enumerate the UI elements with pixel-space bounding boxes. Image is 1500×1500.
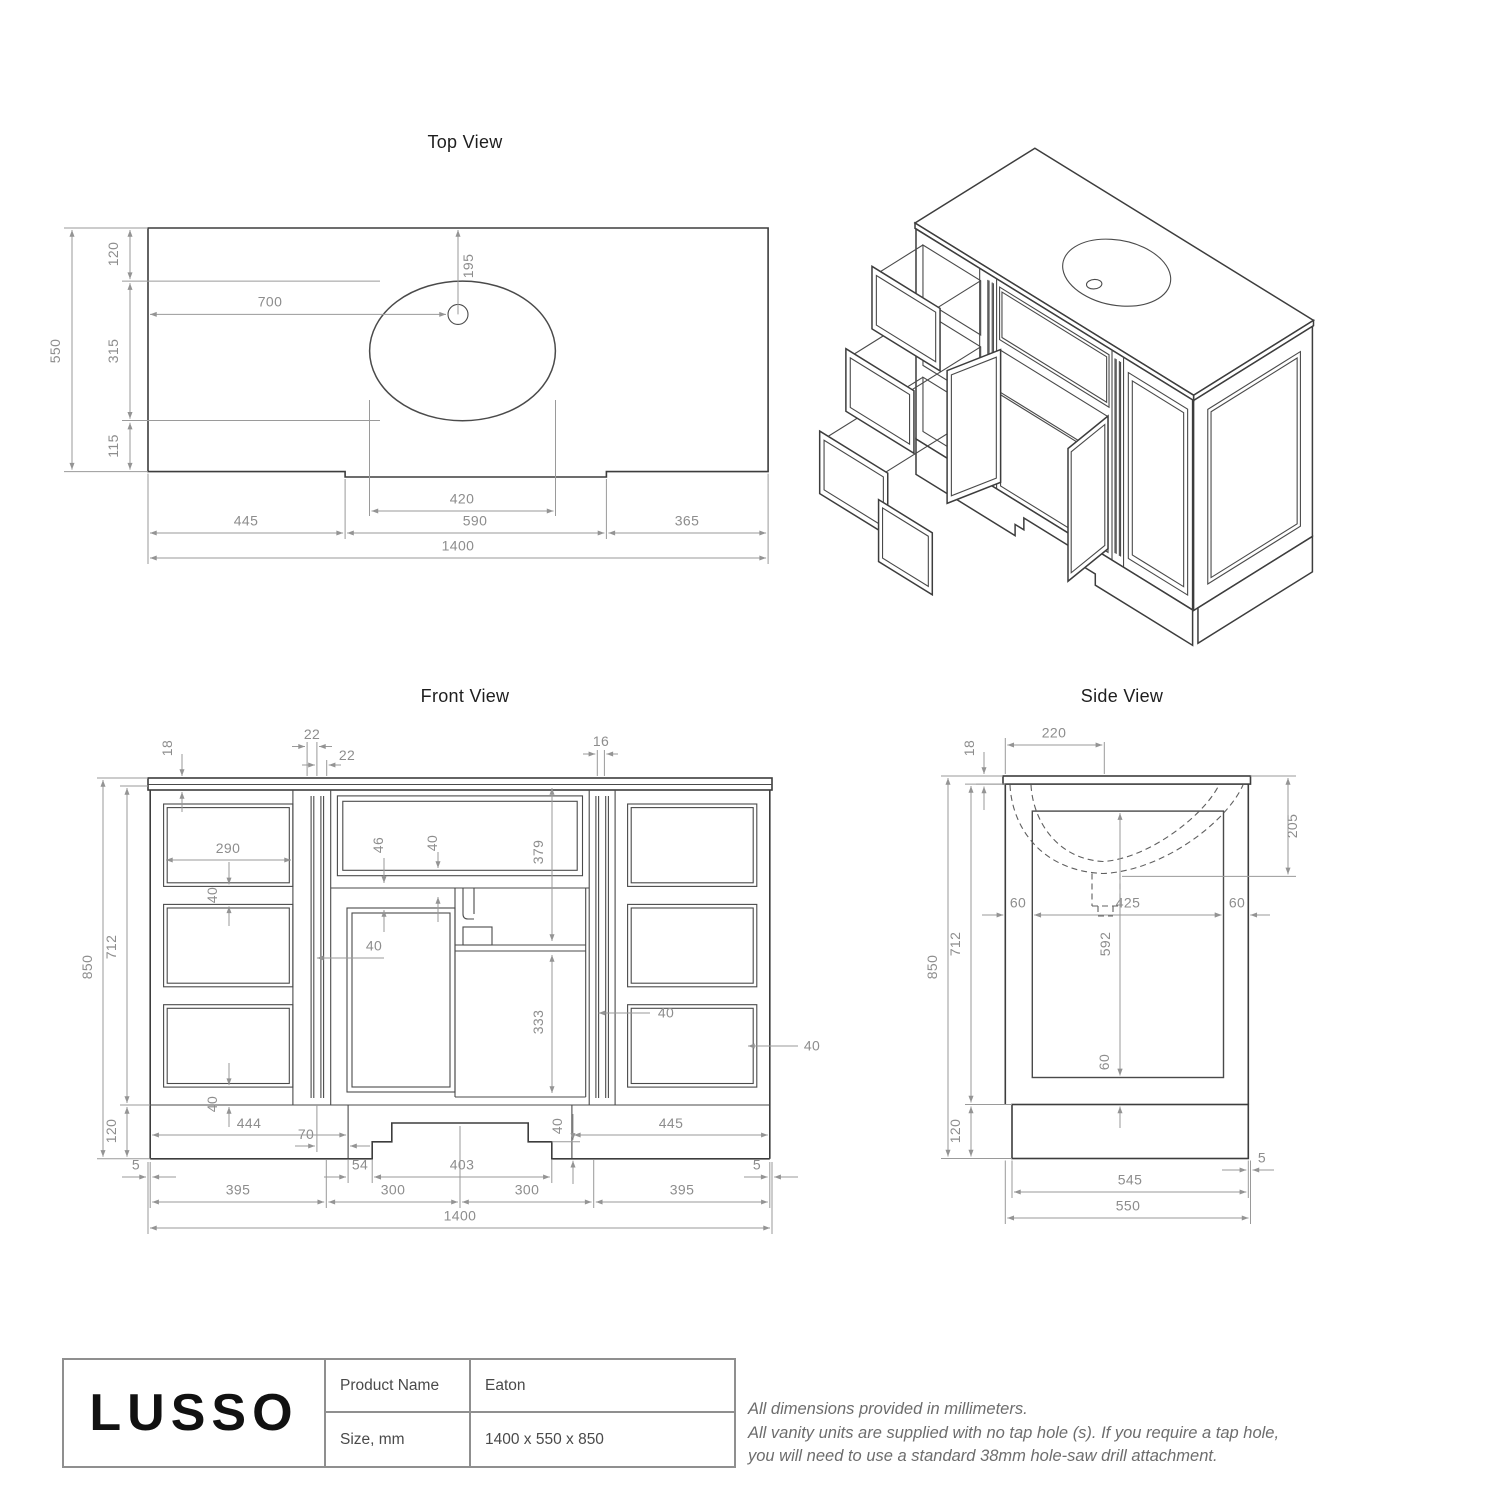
dim-label: 550 (1116, 1198, 1141, 1214)
brand-logo: LUSSO (64, 1360, 326, 1466)
dim-label: 54 (352, 1157, 368, 1173)
waste-trap (463, 888, 492, 945)
size-label: Size, mm (326, 1413, 471, 1466)
iso-open-drawer-3 (820, 431, 888, 536)
basin-oval (370, 281, 556, 421)
pilaster-grooves (311, 796, 608, 1098)
dim-label: 403 (450, 1157, 475, 1173)
dim-label: 850 (79, 955, 95, 980)
dim-label: 40 (804, 1038, 820, 1054)
product-name-value: Eaton (471, 1360, 734, 1413)
iso-open-door-left (947, 350, 1001, 504)
dim-label: 1400 (442, 538, 475, 554)
dim-label: 300 (381, 1182, 406, 1198)
dim-label: 16 (593, 733, 609, 749)
side-plinth (1012, 1105, 1248, 1159)
dim-label: 22 (339, 747, 355, 763)
dim-label: 365 (675, 513, 700, 529)
dim-label: 40 (366, 938, 382, 954)
dim-label: 46 (370, 837, 386, 853)
dim-label: 425 (1116, 895, 1141, 911)
title-block-table: Product Name Eaton Size, mm 1400 x 550 x… (326, 1360, 734, 1466)
specification-sheet: Top View Front View Side View (0, 0, 1500, 1500)
isometric-view (820, 148, 1314, 646)
dim-label: 550 (47, 339, 63, 364)
front-view-object-lines (148, 778, 772, 1159)
dim-label: 40 (204, 1096, 220, 1112)
dim-label: 444 (237, 1115, 262, 1131)
dim-label: 5 (1258, 1150, 1266, 1166)
dim-label: 120 (103, 1119, 119, 1144)
dim-label: 60 (1229, 895, 1245, 911)
dim-label: 195 (460, 254, 476, 279)
side-view-object-lines (1003, 776, 1251, 1159)
dim-label: 18 (961, 740, 977, 756)
dim-label: 420 (450, 491, 475, 507)
dim-label: 120 (947, 1119, 963, 1144)
side-panel (1032, 811, 1223, 1077)
right-door-panels (628, 804, 757, 1087)
note-line: All vanity units are supplied with no ta… (748, 1422, 1328, 1446)
side-view-dimensions: 18 220 205 850 712 (924, 725, 1300, 1225)
dim-label: 315 (105, 339, 121, 364)
dim-label: 445 (659, 1115, 684, 1131)
dim-label: 445 (234, 513, 259, 529)
dim-label: 590 (463, 513, 488, 529)
dim-label: 60 (1010, 895, 1026, 911)
dim-label: 205 (1284, 814, 1300, 839)
top-view: 550 120 315 115 700 195 420 445 590 (47, 228, 768, 564)
dim-label: 22 (304, 726, 320, 742)
dim-label: 300 (515, 1182, 540, 1198)
dim-label: 115 (105, 434, 121, 458)
dim-label: 60 (1096, 1054, 1112, 1070)
dim-label: 40 (658, 1005, 674, 1021)
dim-label: 850 (924, 955, 940, 980)
iso-open-drawer-2 (846, 349, 914, 454)
center-door (347, 908, 455, 1092)
dim-label: 379 (530, 840, 546, 865)
front-view: 850 712 120 18 22 22 (79, 726, 820, 1234)
dim-label: 5 (132, 1157, 140, 1173)
dim-label: 545 (1118, 1172, 1143, 1188)
dim-label: 5 (753, 1157, 761, 1173)
side-view: 18 220 205 850 712 (924, 725, 1300, 1225)
dim-label: 395 (226, 1182, 251, 1198)
drawing-sheet: 550 120 315 115 700 195 420 445 590 (0, 0, 1500, 1500)
dim-label: 220 (1042, 725, 1067, 741)
dim-label: 290 (216, 840, 241, 856)
iso-open-drawer-bottom (879, 500, 933, 595)
note-line: you will need to use a standard 38mm hol… (748, 1445, 1328, 1469)
top-view-dimensions: 550 120 315 115 700 195 420 445 590 (47, 228, 768, 564)
dim-label: 40 (204, 887, 220, 903)
size-value: 1400 x 550 x 850 (471, 1413, 734, 1466)
note-line: All dimensions provided in millimeters. (748, 1398, 1328, 1422)
dim-label: 592 (1097, 932, 1113, 957)
dim-label: 40 (424, 835, 440, 851)
product-name-label: Product Name (326, 1360, 471, 1413)
dim-label: 120 (105, 242, 121, 267)
dim-label: 712 (103, 935, 119, 960)
title-block: LUSSO Product Name Eaton Size, mm 1400 x… (62, 1358, 736, 1468)
dim-label: 1400 (444, 1208, 477, 1224)
dim-label: 40 (549, 1118, 565, 1134)
dim-label: 712 (947, 932, 963, 957)
brand-name: LUSSO (89, 1383, 298, 1443)
dim-label: 70 (298, 1126, 314, 1142)
dim-label: 700 (258, 294, 283, 310)
side-countertop (1003, 776, 1251, 784)
dim-label: 395 (670, 1182, 695, 1198)
dim-label: 18 (159, 740, 175, 756)
notes: All dimensions provided in millimeters. … (748, 1398, 1328, 1469)
dim-label: 333 (530, 1010, 546, 1035)
